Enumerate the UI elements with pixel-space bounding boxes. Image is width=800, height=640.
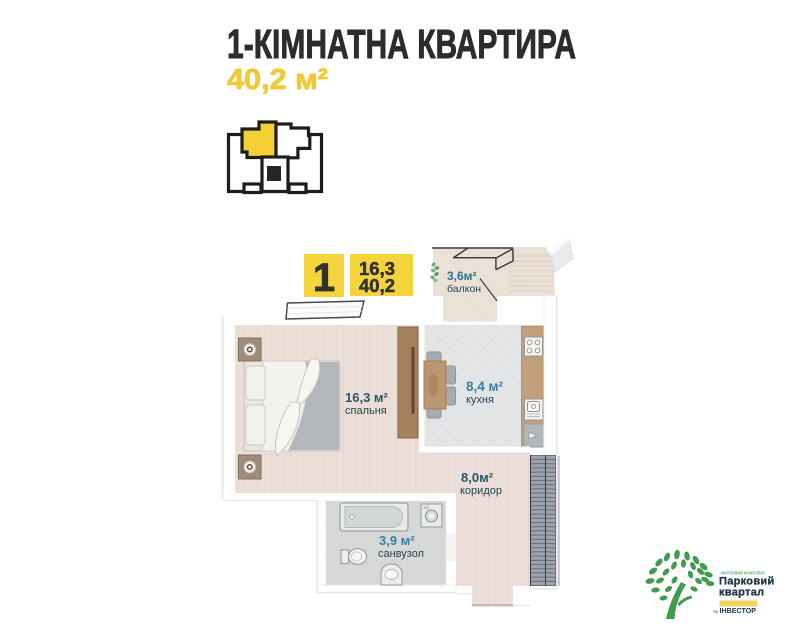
svg-text:3,6м²: 3,6м²: [447, 269, 477, 283]
svg-text:40,2: 40,2: [359, 275, 395, 296]
svg-text:40,2 м²: 40,2 м²: [227, 64, 328, 96]
svg-text:спальня: спальня: [345, 405, 387, 417]
svg-text:3,9 м²: 3,9 м²: [379, 533, 415, 548]
svg-text:від: від: [714, 610, 718, 614]
svg-text:16,3 м²: 16,3 м²: [345, 390, 389, 405]
svg-text:1-КІМНАТНА КВАРТИРА: 1-КІМНАТНА КВАРТИРА: [227, 21, 576, 67]
svg-text:балкон: балкон: [447, 283, 481, 295]
svg-text:8,4 м²: 8,4 м²: [466, 379, 504, 394]
svg-text:санвузол: санвузол: [378, 548, 424, 560]
svg-text:1: 1: [313, 256, 335, 300]
svg-text:квартал: квартал: [719, 587, 764, 599]
svg-text:коридор: коридор: [460, 485, 502, 497]
svg-text:ІНВЕСТОР: ІНВЕСТОР: [720, 606, 757, 615]
svg-text:кухня: кухня: [466, 394, 494, 406]
svg-text:8,0м²: 8,0м²: [461, 470, 494, 485]
